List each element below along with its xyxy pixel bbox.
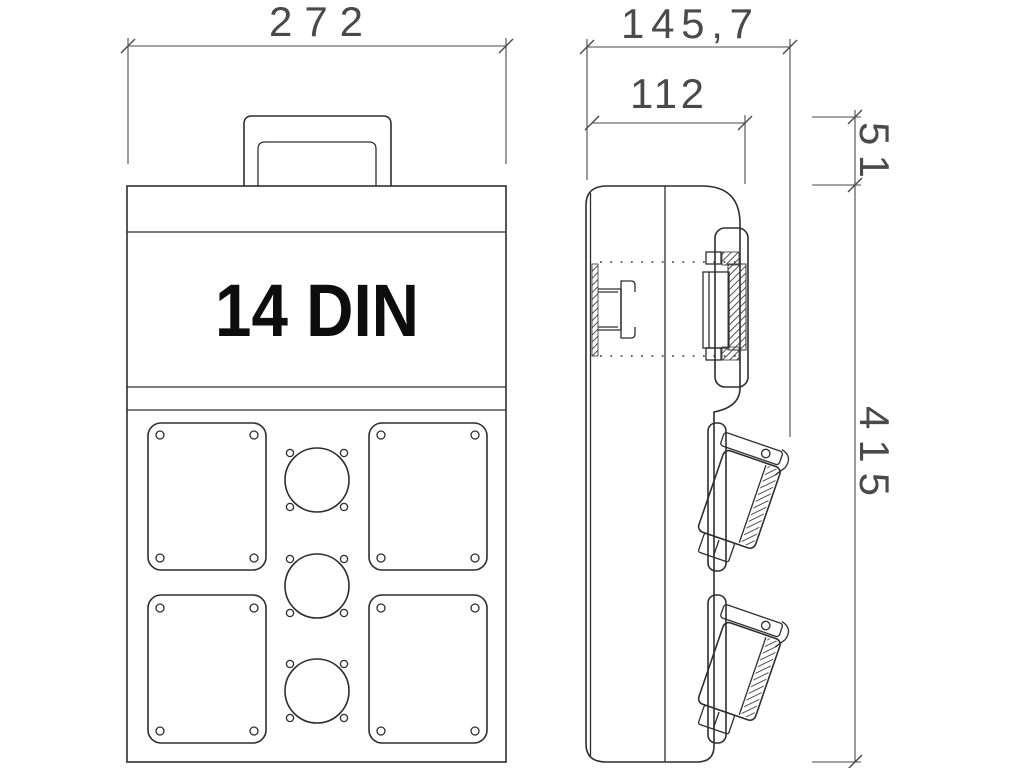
screw-hole (340, 555, 347, 562)
screw-hole (286, 449, 293, 456)
screw-hole (340, 609, 347, 616)
screw-hole (340, 714, 347, 721)
screw-hole (340, 503, 347, 510)
screw-hole (286, 503, 293, 510)
screw-hole (250, 431, 258, 439)
dim-text-112: 112 (630, 70, 706, 117)
screw-hole (156, 554, 164, 562)
screw-hole (250, 554, 258, 562)
screw-hole (340, 660, 347, 667)
screw-hole (286, 609, 293, 616)
dim-text-415: 415 (851, 406, 898, 498)
screw-hole (286, 660, 293, 667)
screw-hole (471, 554, 479, 562)
socket-plate-bottom-right (369, 595, 487, 743)
socket-plate-top-left (148, 423, 266, 570)
wall-section-hatch (592, 264, 598, 356)
side-view: 145,7 112 51 415 (580, 0, 898, 768)
technical-drawing-page: 14 DIN (0, 0, 1024, 768)
screw-hole (250, 604, 258, 612)
dim-text-272: 272 (269, 0, 365, 45)
screw-hole (250, 727, 258, 735)
side-socket-bottom (685, 602, 792, 742)
screw-hole (286, 555, 293, 562)
screw-hole (340, 449, 347, 456)
screw-hole (377, 431, 385, 439)
cable-gland-top (285, 448, 349, 512)
din-rail-bracket (598, 281, 635, 338)
din-window-lid (703, 228, 748, 387)
dimension-body-depth-112: 112 (585, 70, 752, 184)
cable-gland-circles (285, 448, 349, 723)
carry-handle (244, 116, 391, 186)
dimension-width-272: 272 (121, 0, 513, 164)
dim-text-145-7: 145,7 (621, 0, 755, 47)
window-frame-section (703, 272, 729, 348)
screw-hole (156, 727, 164, 735)
screw-hole (377, 604, 385, 612)
cable-gland-bottom (285, 659, 349, 723)
window-section-hatch (728, 264, 746, 350)
socket-plate-bottom-left (148, 595, 266, 743)
screw-hole (377, 554, 385, 562)
side-socket-top (685, 430, 792, 570)
screw-hole (286, 714, 293, 721)
din-capacity-label: 14 DIN (215, 269, 419, 352)
screw-hole (156, 604, 164, 612)
socket-plates (148, 423, 487, 743)
socket-panel-bottom (708, 595, 726, 743)
socket-plate-top-right (369, 423, 487, 570)
dim-text-51: 51 (851, 122, 898, 180)
window-latch-bottom (706, 348, 721, 360)
enclosure-dimension-drawing: 14 DIN (0, 0, 1024, 768)
screw-hole (471, 431, 479, 439)
screw-hole (471, 604, 479, 612)
screw-hole (156, 431, 164, 439)
screw-hole (377, 727, 385, 735)
dimension-depth-145-7: 145,7 (580, 0, 797, 437)
dimension-height-415: 415 (812, 185, 898, 768)
cable-gland-middle (285, 554, 349, 618)
front-view: 14 DIN (121, 0, 513, 762)
screw-hole (471, 727, 479, 735)
socket-panel-top (708, 423, 726, 571)
dimension-lid-height-51: 51 (812, 110, 898, 192)
